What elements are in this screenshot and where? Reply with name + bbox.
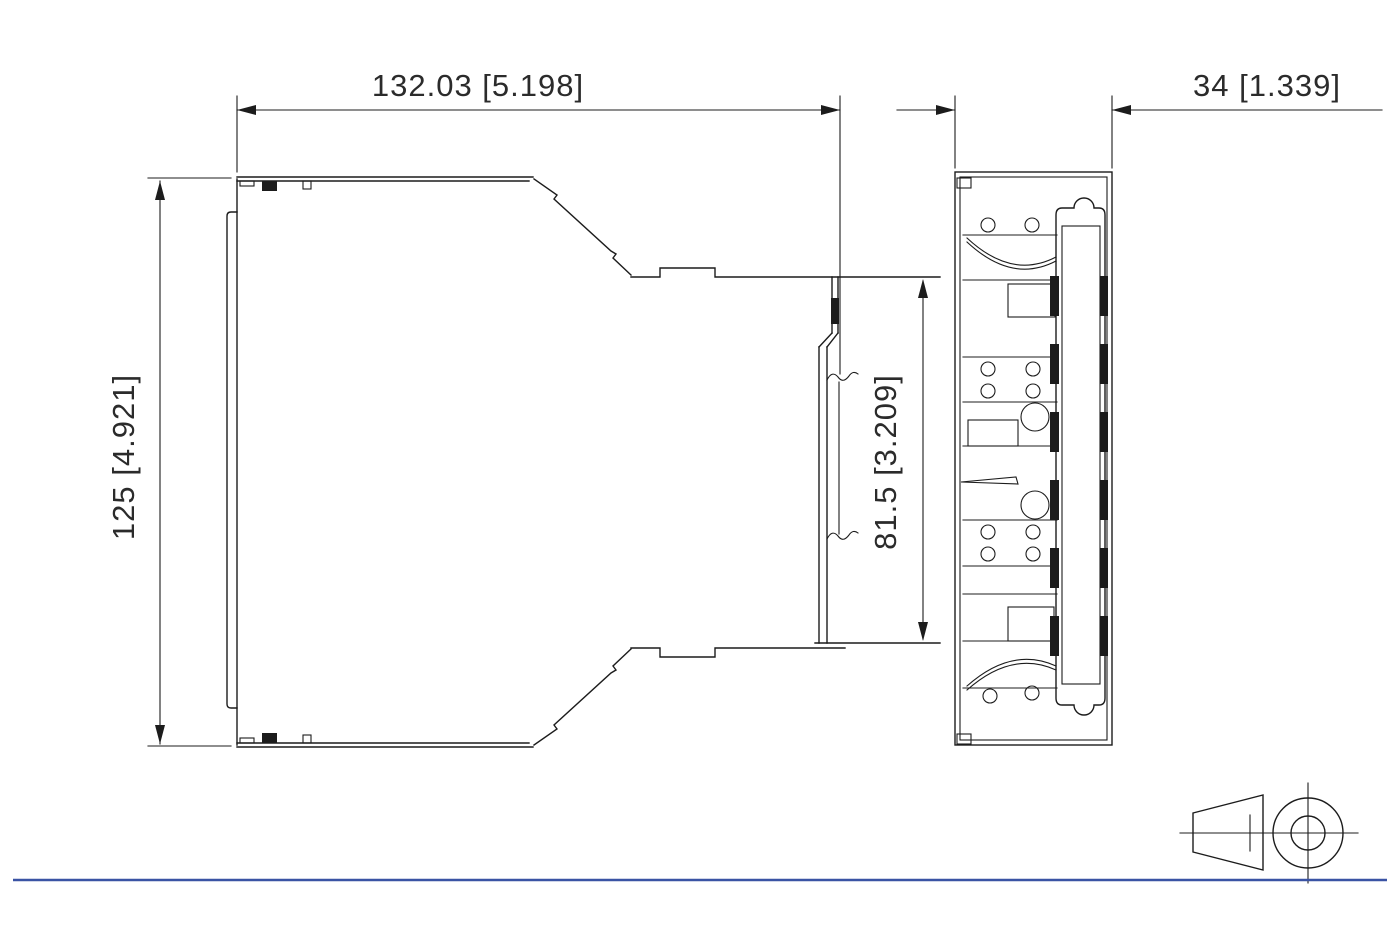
end-inner — [960, 177, 1107, 740]
connector-tooth — [1100, 344, 1108, 384]
extension-line — [237, 96, 840, 374]
connector-tooth — [1050, 480, 1059, 520]
technical-drawing: 132.03 [5.198] 34 [1.339] 125 [4.921] 81… — [0, 0, 1400, 934]
arrowhead-left — [936, 105, 955, 115]
screw-hole-large — [1021, 403, 1049, 431]
top-plateau — [631, 268, 940, 277]
front-strip — [227, 212, 237, 708]
terminal-hole — [1025, 218, 1039, 232]
crosshair-centerlines — [1258, 783, 1358, 883]
end-outer — [955, 172, 1112, 745]
terminal-hole — [1026, 547, 1040, 561]
connector-tooth — [1050, 616, 1059, 656]
arrowhead-bottom — [155, 725, 165, 744]
connector-tooth — [1100, 616, 1108, 656]
bottom-tab-small — [303, 735, 311, 743]
connector-tooth — [1100, 276, 1108, 316]
wire-arc-bottom — [967, 659, 1056, 690]
terminal-hole — [983, 689, 997, 703]
connector-tooth — [1100, 480, 1108, 520]
screw-hole-large — [1021, 491, 1049, 519]
dimension-overall-depth: 34 [1.339] — [897, 68, 1382, 168]
terminal-hole — [981, 218, 995, 232]
break-squiggle-top — [827, 372, 858, 380]
side-top-edge — [237, 177, 533, 181]
side-bottom-edge — [237, 743, 533, 747]
connector-tooth — [1050, 344, 1059, 384]
bottom-slope — [534, 649, 631, 745]
connector-tooth — [1050, 548, 1059, 588]
bottom-tab — [262, 733, 277, 743]
terminal-hole — [981, 525, 995, 539]
dimension-label-overall-width: 132.03 [5.198] — [372, 68, 584, 103]
bottom-plateau — [631, 648, 845, 657]
dimension-din-opening: 81.5 [3.209] — [868, 279, 928, 641]
connector-outline — [1056, 198, 1105, 715]
dimension-label-din-opening: 81.5 [3.209] — [868, 374, 903, 550]
terminal-hole — [981, 362, 995, 376]
arrowhead-right — [821, 105, 840, 115]
dimension-overall-width: 132.03 [5.198] — [237, 68, 840, 374]
arrowhead-top — [155, 181, 165, 200]
drawing-sheet: 132.03 [5.198] 34 [1.339] 125 [4.921] 81… — [0, 0, 1400, 934]
arrowhead-right — [1112, 105, 1131, 115]
terminal-hole — [1026, 362, 1040, 376]
top-slope — [534, 179, 631, 275]
terminal-hole — [1026, 525, 1040, 539]
component-rect — [968, 420, 1018, 446]
dimension-label-overall-height: 125 [4.921] — [106, 374, 141, 540]
component-rect — [1008, 284, 1055, 317]
connector-tooth — [1050, 412, 1059, 452]
terminal-hole — [981, 384, 995, 398]
din-chamfer — [819, 333, 838, 347]
din-channel — [819, 347, 827, 643]
terminal-hole — [1026, 384, 1040, 398]
latch-wedge — [961, 477, 1018, 484]
bottom-tab-tick — [240, 738, 254, 743]
connector-block — [1050, 198, 1108, 715]
arrowhead-bottom — [918, 622, 928, 641]
break-squiggle-bottom — [827, 531, 858, 539]
component-rect — [1008, 607, 1054, 641]
dimension-overall-height: 125 [4.921] — [106, 178, 231, 746]
top-tab — [262, 181, 277, 191]
terminal-holes — [981, 218, 1049, 703]
end-corner-notch-top — [957, 178, 971, 188]
connector-tooth — [1100, 548, 1108, 588]
connector-teeth — [1050, 276, 1108, 656]
connector-tooth — [1100, 412, 1108, 452]
arrowhead-left — [237, 105, 256, 115]
side-view — [227, 177, 940, 747]
dimension-label-overall-depth: 34 [1.339] — [1193, 68, 1341, 103]
din-hook-tab — [831, 298, 839, 324]
end-corner-notch-bottom — [957, 734, 971, 744]
top-tab-tick — [240, 181, 254, 186]
section-lines — [963, 235, 1057, 688]
connector-inner — [1062, 226, 1100, 684]
end-view — [955, 172, 1112, 745]
wire-arc-top — [967, 238, 1056, 269]
extension-line — [955, 96, 1112, 168]
terminal-hole — [981, 547, 995, 561]
top-tab-small — [303, 181, 311, 189]
arrowhead-top — [918, 279, 928, 298]
connector-tooth — [1050, 276, 1059, 316]
third-angle-projection-icon — [1180, 783, 1358, 883]
